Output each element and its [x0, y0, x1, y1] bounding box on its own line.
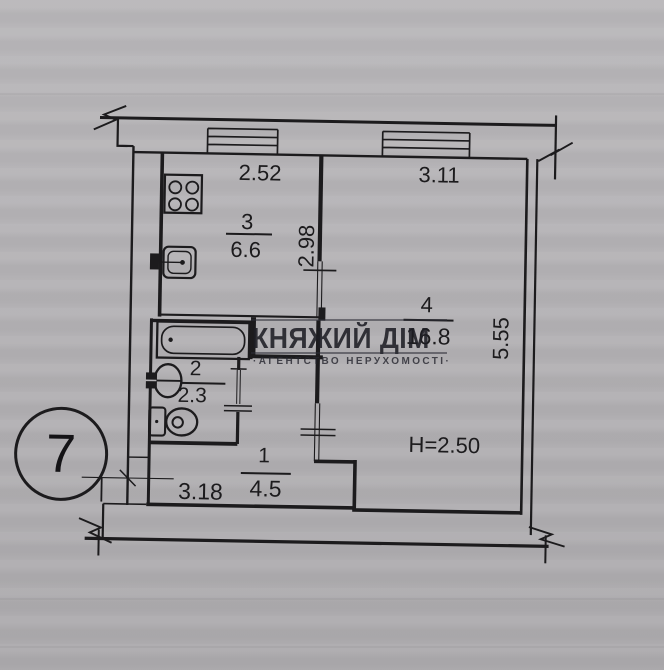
room-3-number: 3	[225, 210, 269, 234]
stove-icon	[164, 175, 202, 214]
room-2-area: 2.3	[167, 385, 217, 408]
room-1-area: 4.5	[239, 476, 291, 501]
room-2-number: 2	[173, 358, 217, 381]
watermark-rule-top	[251, 319, 447, 321]
toilet-icon	[149, 407, 197, 436]
dimension-hall-width: 3.18	[171, 479, 229, 504]
kitchen-sink-icon	[150, 246, 196, 278]
room-3-area: 6.6	[220, 238, 272, 262]
dimension-kitchen-depth: 2.98	[294, 206, 319, 286]
ceiling-height-label: H=2.50	[400, 433, 488, 458]
room-4-number: 4	[403, 293, 451, 317]
room-1-number: 1	[240, 445, 288, 468]
dimension-kitchen-width: 2.52	[225, 161, 295, 185]
window-icon	[382, 131, 469, 158]
bathtub-icon	[157, 322, 250, 360]
dimension-room-depth: 5.55	[489, 298, 514, 378]
floor-plan-scan: 2.52 2.98 3.11 5.55 3.18 H=2.50 3 6.6 4 …	[0, 0, 664, 670]
dimension-room-width: 3.11	[408, 163, 470, 187]
watermark-subtitle: ·АГЕНТСТВО НЕРУХОМОСТІ·	[253, 356, 451, 367]
window-icon	[207, 128, 277, 154]
plan-number: 7	[46, 423, 77, 486]
watermark-rule-bottom	[251, 352, 447, 354]
